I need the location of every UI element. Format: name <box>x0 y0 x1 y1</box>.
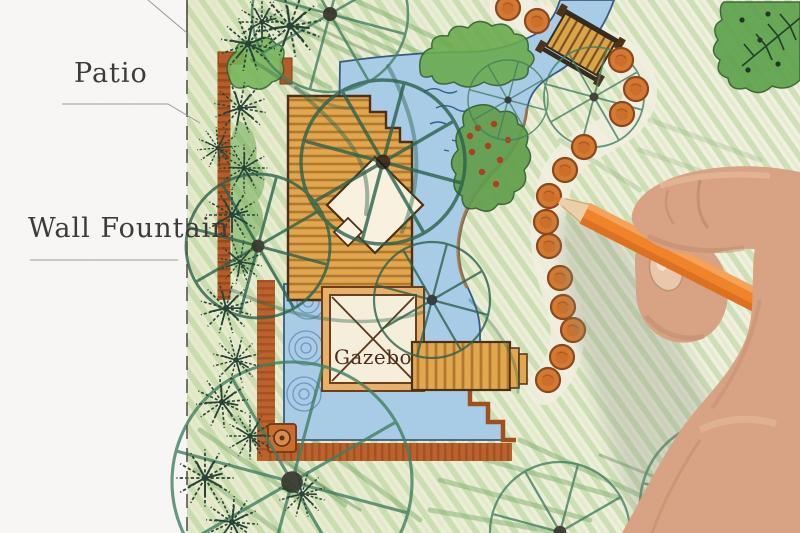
paper-grain <box>0 0 800 533</box>
garden-plan-photo: Gazebo <box>0 0 800 533</box>
garden-plan-drawing: Gazebo <box>0 0 800 533</box>
